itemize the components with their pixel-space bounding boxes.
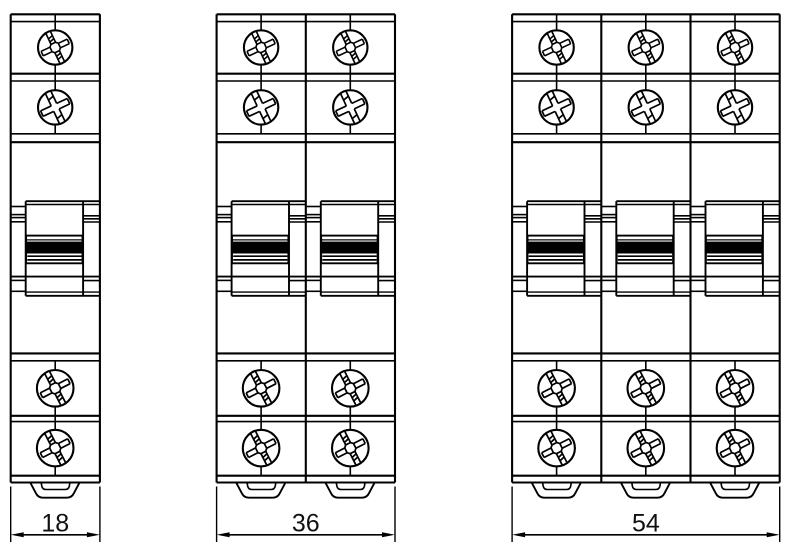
- svg-text:36: 36: [292, 510, 320, 538]
- svg-text:18: 18: [41, 510, 69, 538]
- svg-text:54: 54: [632, 510, 660, 538]
